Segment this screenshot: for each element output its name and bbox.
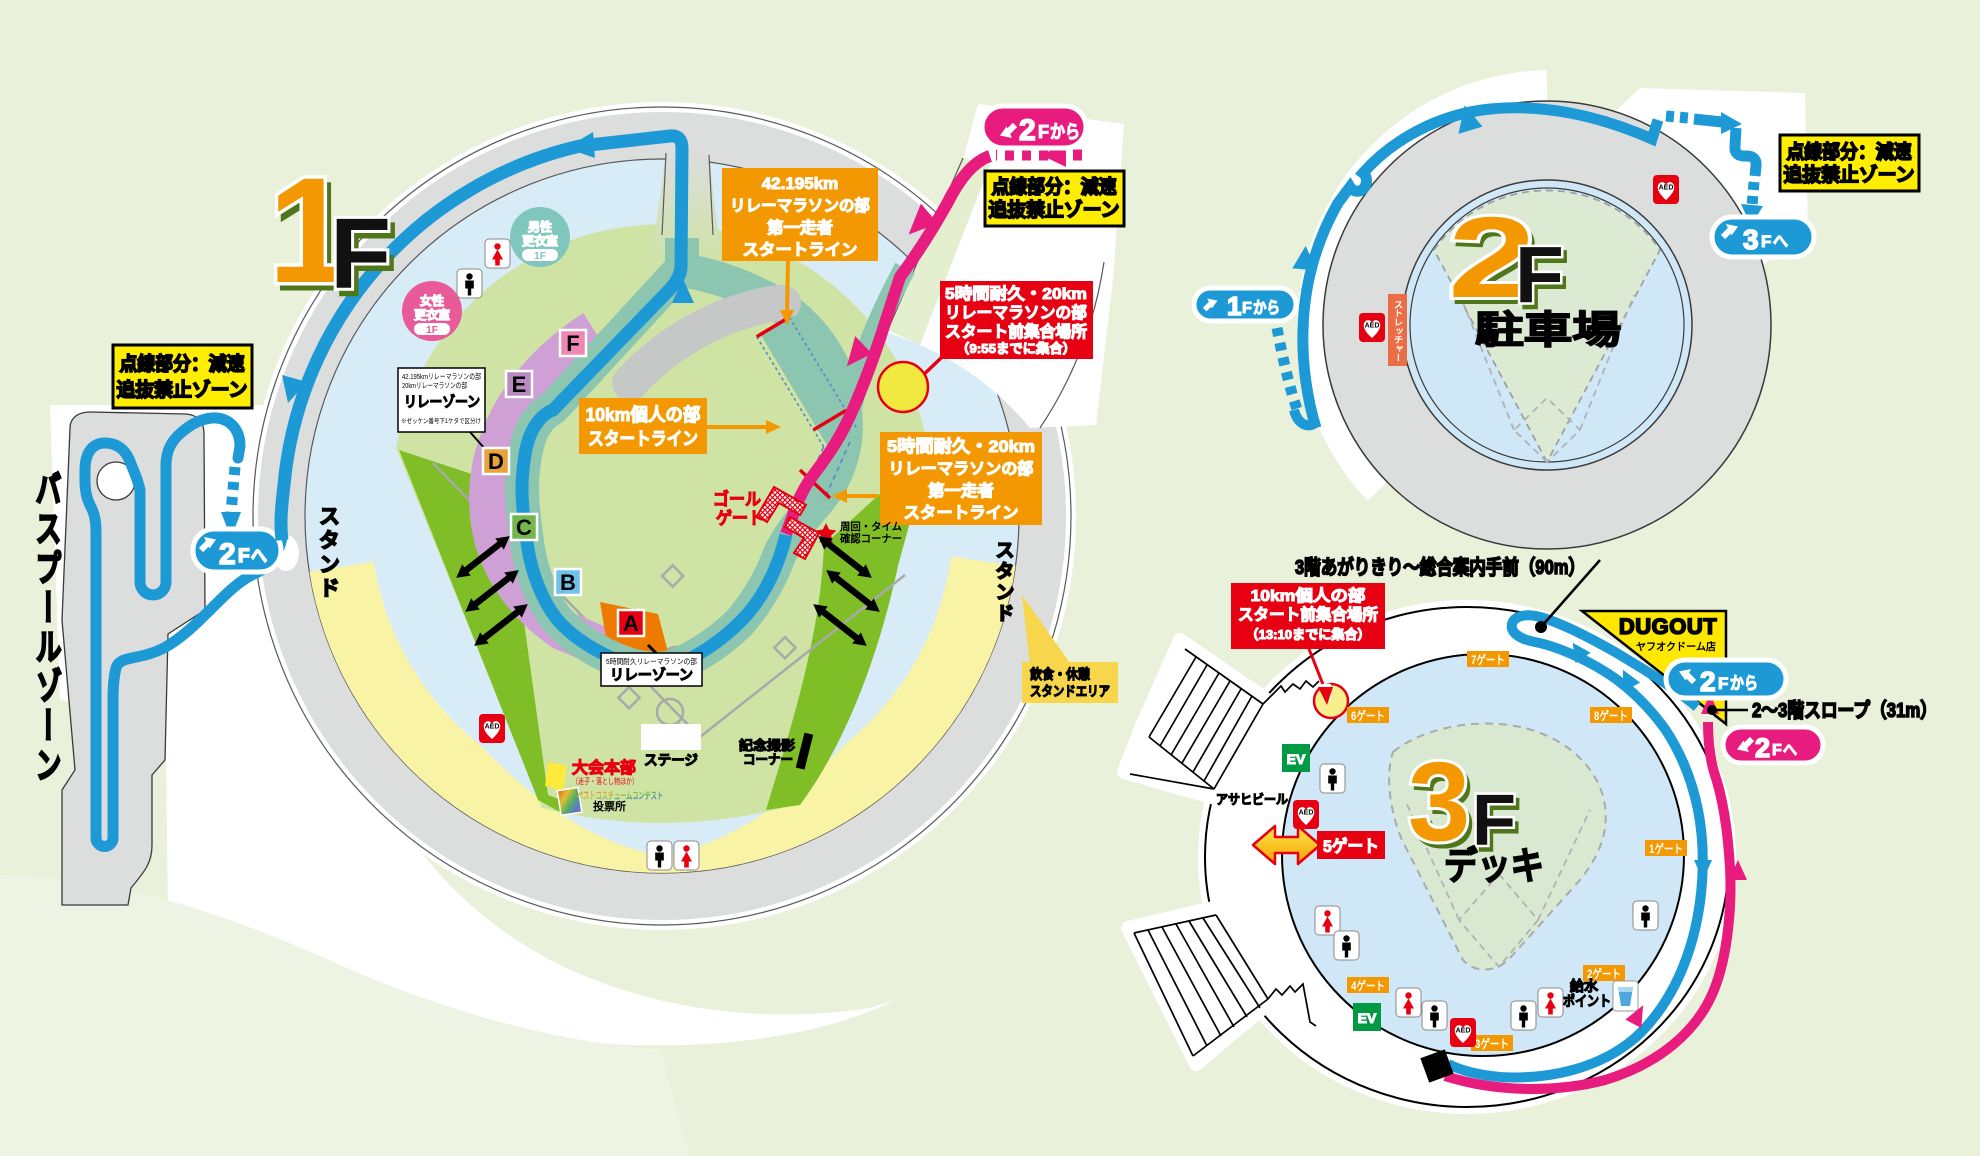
svg-text:42.195km: 42.195km xyxy=(762,174,839,193)
svg-text:スタンド: スタンド xyxy=(317,505,340,601)
svg-text:10km個人の部: 10km個人の部 xyxy=(586,404,701,425)
svg-text:リレーゾーン: リレーゾーン xyxy=(610,667,693,684)
svg-text:更衣室: 更衣室 xyxy=(522,233,558,248)
svg-text:点線部分：減速: 点線部分：減速 xyxy=(1787,140,1912,163)
svg-text:スタンドエリア: スタンドエリア xyxy=(1030,684,1110,699)
svg-text:42.195kmリレーマラソンの部: 42.195kmリレーマラソンの部 xyxy=(402,371,481,381)
svg-text:へ: へ xyxy=(1773,232,1788,251)
svg-text:から: から xyxy=(1050,122,1080,142)
svg-text:スタートライン: スタートライン xyxy=(904,504,1019,522)
svg-text:F: F xyxy=(1515,230,1564,319)
svg-text:3階あがりきり～総合案内手前（90m）: 3階あがりきり～総合案内手前（90m） xyxy=(1295,555,1585,579)
svg-text:F: F xyxy=(330,198,391,310)
svg-text:F: F xyxy=(1761,232,1771,251)
svg-text:1ゲート: 1ゲート xyxy=(1649,841,1683,856)
svg-text:大会本部: 大会本部 xyxy=(572,758,636,777)
svg-text:へ: へ xyxy=(251,546,267,567)
svg-text:10km個人の部: 10km個人の部 xyxy=(1251,586,1366,605)
svg-text:へ: へ xyxy=(1783,742,1797,759)
svg-text:記念撮影: 記念撮影 xyxy=(739,738,795,753)
svg-text:リレーマラソンの部: リレーマラソンの部 xyxy=(945,303,1087,322)
svg-text:F: F xyxy=(1772,742,1782,759)
svg-text:リレーマラソンの部: リレーマラソンの部 xyxy=(889,459,1034,478)
svg-text:5時間耐久・20km: 5時間耐久・20km xyxy=(945,284,1087,303)
svg-text:EV: EV xyxy=(1287,751,1306,767)
svg-text:EV: EV xyxy=(1358,1010,1377,1026)
svg-text:7ゲート: 7ゲート xyxy=(1471,652,1505,667)
svg-text:ポイント: ポイント xyxy=(1563,993,1611,1009)
svg-text:4ゲート: 4ゲート xyxy=(1351,978,1385,993)
svg-text:スタンド: スタンド xyxy=(993,540,1014,624)
svg-text:ストレッチャー: ストレッチャー xyxy=(1392,300,1404,362)
svg-text:コーナー: コーナー xyxy=(743,752,793,767)
svg-text:※ゼッケン番号下1ケタで区分け: ※ゼッケン番号下1ケタで区分け xyxy=(401,416,481,425)
svg-text:から: から xyxy=(1730,674,1758,693)
svg-text:バスプールゾーン: バスプールゾーン xyxy=(32,470,62,785)
svg-text:3ゲート: 3ゲート xyxy=(1475,1036,1509,1051)
svg-text:3: 3 xyxy=(1743,224,1759,255)
svg-text:リレーゾーン: リレーゾーン xyxy=(404,394,480,411)
svg-text:F: F xyxy=(1718,674,1728,693)
svg-text:（13:10までに集合）: （13:10までに集合） xyxy=(1246,627,1371,642)
svg-text:2: 2 xyxy=(1019,114,1036,147)
svg-text:（9:55までに集合）: （9:55までに集合） xyxy=(956,341,1076,356)
svg-text:追抜禁止ゾーン: 追抜禁止ゾーン xyxy=(1784,163,1915,186)
svg-text:スタートライン: スタートライン xyxy=(743,241,858,259)
svg-text:F: F xyxy=(1038,122,1049,142)
svg-text:5ゲート: 5ゲート xyxy=(1323,836,1379,856)
svg-text:2～3階スロープ（31m）: 2～3階スロープ（31m） xyxy=(1752,699,1937,722)
svg-text:追抜禁止ゾーン: 追抜禁止ゾーン xyxy=(989,198,1120,221)
svg-text:1F: 1F xyxy=(426,325,438,336)
svg-text:点線部分：減速: 点線部分：減速 xyxy=(992,175,1117,198)
svg-text:B: B xyxy=(560,570,576,595)
svg-text:1: 1 xyxy=(1227,291,1241,321)
svg-text:スタート前集合場所: スタート前集合場所 xyxy=(945,322,1087,341)
svg-text:追抜禁止ゾーン: 追抜禁止ゾーン xyxy=(117,378,248,401)
svg-text:5時間耐久リレーマラソンの部: 5時間耐久リレーマラソンの部 xyxy=(606,656,697,666)
svg-text:飲食・休憩: 飲食・休憩 xyxy=(1029,666,1090,682)
svg-text:駐車場: 駐車場 xyxy=(1475,310,1621,352)
svg-text:F: F xyxy=(1242,300,1252,317)
svg-text:デッキ: デッキ xyxy=(1444,845,1544,888)
svg-text:スタート前集合場所: スタート前集合場所 xyxy=(1238,605,1378,624)
svg-text:2: 2 xyxy=(1700,666,1716,697)
svg-text:5時間耐久・20km: 5時間耐久・20km xyxy=(887,436,1035,456)
svg-text:8ゲート: 8ゲート xyxy=(1594,708,1628,723)
svg-text:確認コーナー: 確認コーナー xyxy=(840,532,902,545)
svg-text:A: A xyxy=(623,611,639,636)
svg-text:2: 2 xyxy=(1755,733,1770,763)
svg-text:男性: 男性 xyxy=(528,219,552,234)
svg-text:（迷子・落とし物ほか）: （迷子・落とし物ほか） xyxy=(572,776,638,786)
svg-text:第一走者: 第一走者 xyxy=(928,481,994,500)
svg-text:ステージ: ステージ xyxy=(644,752,698,768)
svg-text:更衣室: 更衣室 xyxy=(414,307,450,322)
svg-text:2: 2 xyxy=(219,538,236,571)
svg-text:女性: 女性 xyxy=(420,293,444,308)
svg-text:給水: 給水 xyxy=(1570,978,1599,994)
svg-text:E: E xyxy=(512,372,527,397)
svg-text:6ゲート: 6ゲート xyxy=(1351,708,1385,723)
svg-text:20kmリレーマラソンの部: 20kmリレーマラソンの部 xyxy=(402,380,467,390)
svg-text:アサヒビール: アサヒビール xyxy=(1216,792,1288,807)
svg-text:1F: 1F xyxy=(534,251,546,262)
svg-text:周回・タイム: 周回・タイム xyxy=(840,521,902,533)
svg-text:C: C xyxy=(516,515,532,540)
svg-text:ヤフオクドーム店: ヤフオクドーム店 xyxy=(1636,640,1716,653)
svg-text:ゲート: ゲート xyxy=(716,508,764,528)
svg-text:D: D xyxy=(488,449,504,474)
svg-text:F: F xyxy=(566,331,579,356)
svg-text:リレーマラソンの部: リレーマラソンの部 xyxy=(730,196,870,215)
svg-text:投票所: 投票所 xyxy=(593,799,626,813)
svg-text:第一走者: 第一走者 xyxy=(767,218,833,237)
svg-text:F: F xyxy=(238,546,250,567)
svg-text:から: から xyxy=(1253,299,1280,317)
svg-text:スタートライン: スタートライン xyxy=(588,429,698,449)
svg-text:DUGOUT: DUGOUT xyxy=(1619,614,1717,639)
svg-text:点線部分：減速: 点線部分：減速 xyxy=(120,352,245,375)
svg-text:ゴール: ゴール xyxy=(713,489,761,509)
